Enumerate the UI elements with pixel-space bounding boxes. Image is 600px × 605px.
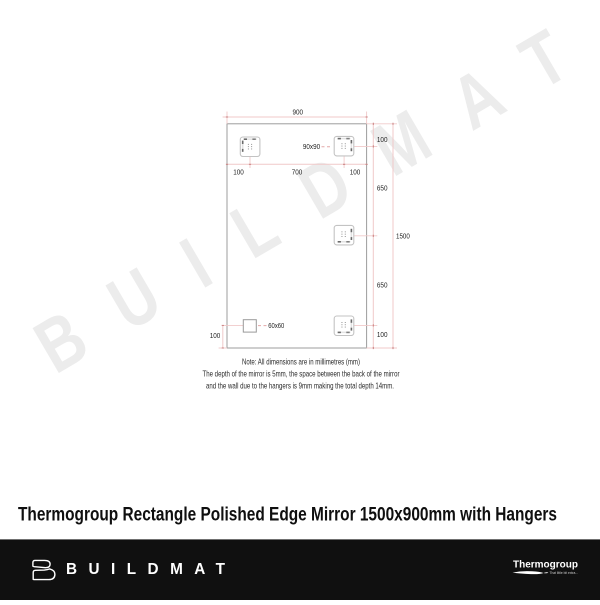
svg-text:100: 100 — [210, 331, 221, 340]
svg-text:650: 650 — [377, 281, 388, 290]
svg-text:The depth of the mirror is 5mm: The depth of the mirror is 5mm, the spac… — [203, 368, 400, 378]
svg-text:Thermogroup: Thermogroup — [513, 560, 578, 571]
svg-text:Thermogroup Rectangle Polished: Thermogroup Rectangle Polished Edge Mirr… — [18, 504, 557, 525]
svg-text:900: 900 — [293, 107, 304, 116]
svg-text:That little bit extra...: That little bit extra... — [550, 571, 579, 575]
svg-text:60x60: 60x60 — [268, 321, 284, 330]
svg-text:700: 700 — [292, 168, 303, 177]
svg-text:100: 100 — [377, 330, 388, 339]
svg-text:90x90: 90x90 — [303, 142, 320, 151]
svg-text:650: 650 — [377, 184, 388, 193]
svg-text:Note: All dimensions are in mi: Note: All dimensions are in millimetres … — [242, 357, 360, 367]
svg-text:100: 100 — [377, 135, 388, 144]
svg-text:and the wall due to the hanger: and the wall due to the hangers is 9mm m… — [206, 380, 394, 390]
svg-text:1500: 1500 — [396, 232, 410, 241]
svg-text:BUILDMAT: BUILDMAT — [21, 14, 581, 389]
svg-text:100: 100 — [350, 168, 361, 177]
svg-text:100: 100 — [233, 168, 244, 177]
